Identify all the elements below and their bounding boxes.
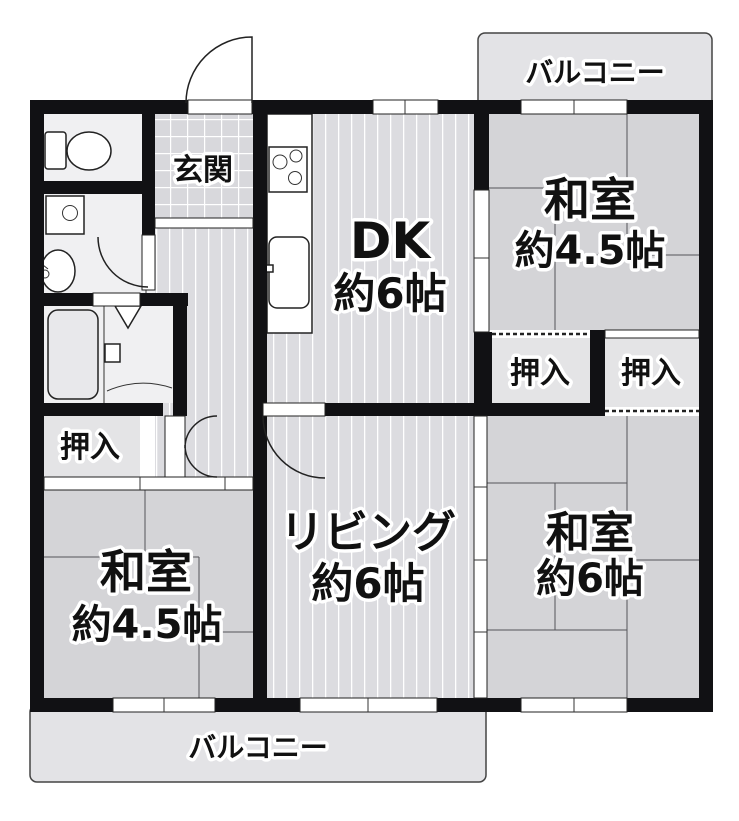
toilet-icon bbox=[45, 132, 111, 170]
washitsu-se-size-label: 約6帖 bbox=[536, 556, 644, 602]
balcony-bottom-label: バルコニー bbox=[188, 731, 327, 764]
entrance-door-arc bbox=[186, 37, 252, 103]
stove-icon bbox=[269, 147, 307, 192]
double-door-closet-opening bbox=[165, 416, 185, 477]
washitsu-se-name-label: 和室 bbox=[546, 508, 634, 559]
wall-bath-closet bbox=[30, 403, 163, 416]
wall-bottom-3 bbox=[437, 698, 521, 712]
closet-mid-left-label: 押入 bbox=[510, 356, 570, 391]
floor-plan-svg: バルコニー バルコニー 玄関 DK 約6帖 和室 約4.5帖 押入 押入 押入 … bbox=[0, 0, 739, 821]
living-size-label: 約6帖 bbox=[311, 559, 424, 608]
dk-name-label: DK bbox=[350, 212, 433, 270]
closet-mid-right-label: 押入 bbox=[621, 356, 681, 391]
dk-size-label: 約6帖 bbox=[333, 269, 446, 318]
closet-mid-right-back bbox=[605, 330, 699, 338]
wall-dk-washitsu-ne-top bbox=[474, 107, 489, 190]
closet-west-label: 押入 bbox=[60, 430, 120, 465]
entrance-door-opening bbox=[188, 100, 252, 114]
wall-bottom-2 bbox=[215, 698, 300, 712]
sliding-door-washitsu-sw bbox=[44, 477, 253, 490]
wall-closet-mid-left-side bbox=[474, 332, 492, 416]
genkan-label: 玄関 bbox=[173, 153, 233, 188]
wall-bath-corridor bbox=[173, 306, 187, 416]
washitsu-ne-name-label: 和室 bbox=[544, 173, 636, 227]
wall-top-4 bbox=[627, 100, 713, 114]
bath-door-opening bbox=[93, 293, 140, 306]
wall-toilet-washroom bbox=[30, 181, 155, 194]
wall-washroom-bath-left bbox=[30, 293, 93, 306]
washitsu-sw-size-label: 約4.5帖 bbox=[72, 602, 223, 648]
living-door-opening bbox=[263, 403, 325, 416]
sliding-door-dk-washitsu-ne bbox=[474, 190, 489, 332]
wall-bottom-4 bbox=[627, 698, 713, 712]
wall-between-closets bbox=[590, 330, 605, 416]
wall-top-2 bbox=[252, 100, 373, 114]
wall-washroom-bath-right bbox=[140, 293, 188, 306]
wall-top-1 bbox=[30, 100, 188, 114]
wall-toilet-genkan bbox=[142, 114, 155, 235]
living-name-label: リビング bbox=[280, 507, 456, 558]
washroom-door-opening bbox=[142, 235, 155, 290]
washitsu-sw-name-label: 和室 bbox=[100, 545, 192, 599]
floor-plan: バルコニー バルコニー 玄関 DK 約6帖 和室 約4.5帖 押入 押入 押入 … bbox=[0, 0, 739, 821]
washing-machine-icon bbox=[46, 196, 84, 234]
wall-living-top-right bbox=[325, 403, 605, 416]
washitsu-ne-size-label: 約4.5帖 bbox=[515, 228, 666, 274]
wall-living-top-left bbox=[255, 403, 263, 416]
balcony-top-label: バルコニー bbox=[525, 56, 664, 89]
wall-bottom-1 bbox=[30, 698, 113, 712]
wall-outer-right bbox=[699, 100, 713, 712]
sliding-door-living-washitsu-se bbox=[474, 416, 487, 698]
genkan-step bbox=[155, 218, 253, 228]
